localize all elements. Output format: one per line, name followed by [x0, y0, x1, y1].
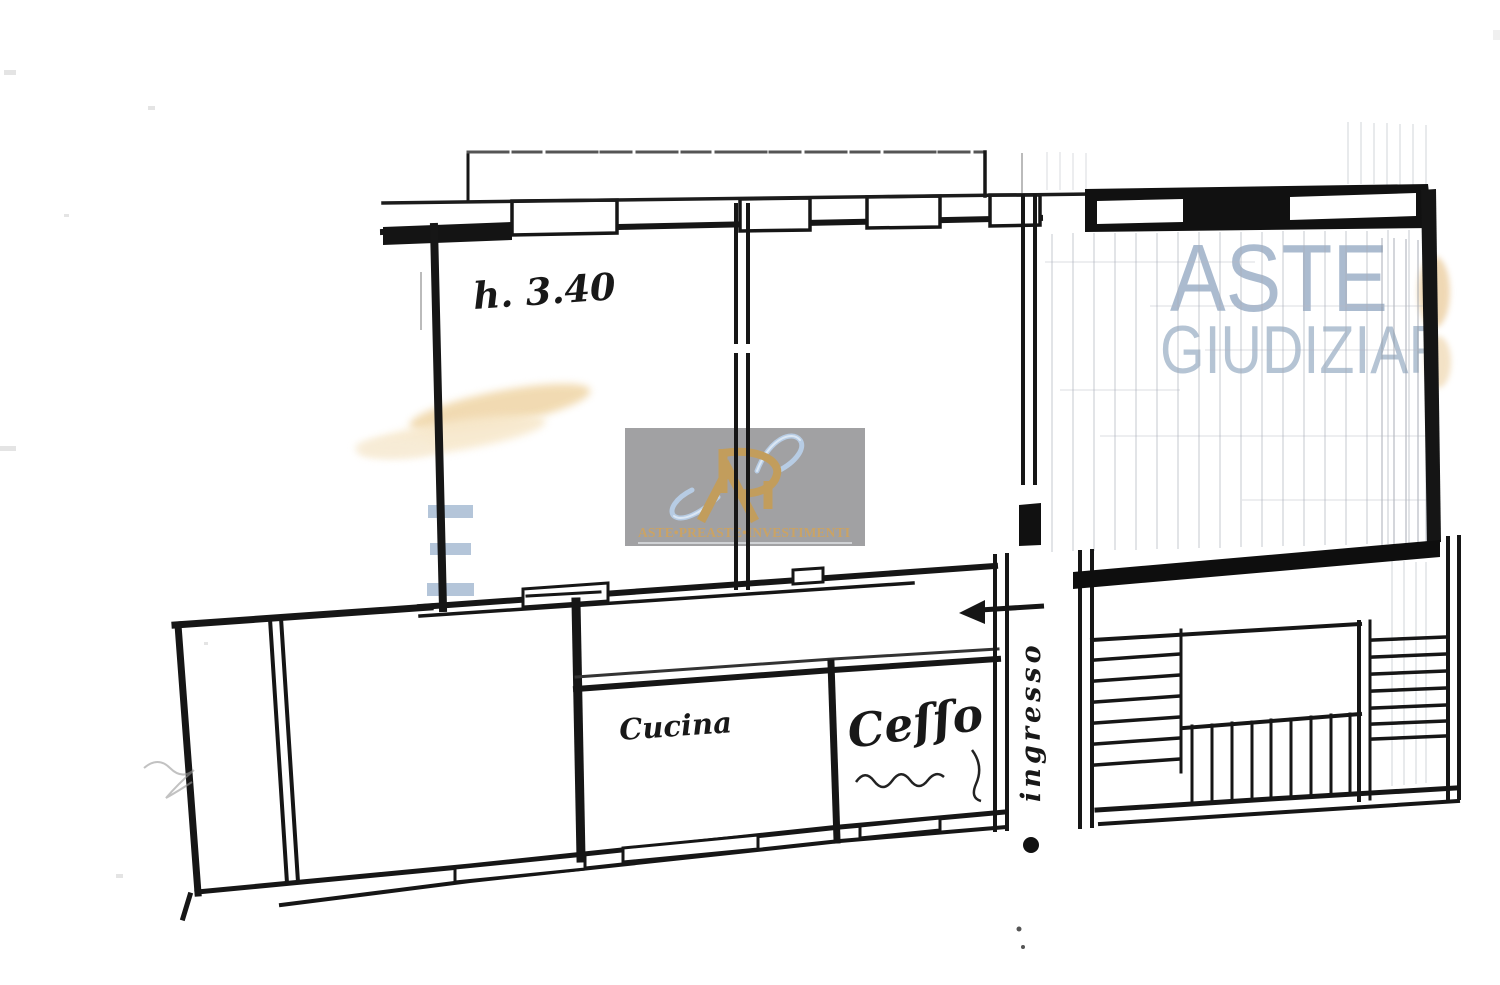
- entrance-label: ingresso: [1016, 641, 1047, 802]
- stairs-top-edge: [1092, 624, 1360, 640]
- right-outer-wall: [1421, 189, 1441, 543]
- api-logo: ASTE•PREASTE•INVESTIMENTI: [625, 428, 865, 546]
- stairs-bottom-wall: [1097, 788, 1455, 810]
- kitchen-label: Cucina: [618, 705, 733, 747]
- floor-plan-drawing: ASTE GIUDIZIAR ASTE•PREASTE•INVESTIMENTI: [0, 0, 1500, 985]
- lower-band-walls: [175, 592, 1006, 918]
- partition-room2-room3: [1019, 196, 1041, 546]
- top-right-wall-band: [1085, 184, 1433, 232]
- stairs-left-flight: [1095, 630, 1181, 772]
- stairs-bottom-flight: [1192, 714, 1350, 804]
- right-room-bottom-wall: [1073, 540, 1440, 589]
- watermark-partial-letter-e: [427, 505, 474, 596]
- floor-plan-scan: ASTE GIUDIZIAR ASTE•PREASTE•INVESTIMENTI: [0, 0, 1500, 985]
- handwritten-annotations: h. 3.40 Cucina Ceſſo ingresso: [144, 264, 1047, 802]
- logo-brand-text: ASTE•PREASTE•INVESTIMENTI: [638, 525, 852, 540]
- entrance-arrow: [959, 600, 1044, 624]
- ceiling-height-note: h. 3.40: [472, 264, 618, 318]
- upper-balcony: [468, 152, 985, 200]
- upper-rooms-bottom-wall: [420, 566, 995, 616]
- toilet-label: Ceſſo: [844, 686, 986, 758]
- stairs-right-boundary: [1448, 537, 1459, 799]
- stairs-right-flight: [1359, 621, 1446, 800]
